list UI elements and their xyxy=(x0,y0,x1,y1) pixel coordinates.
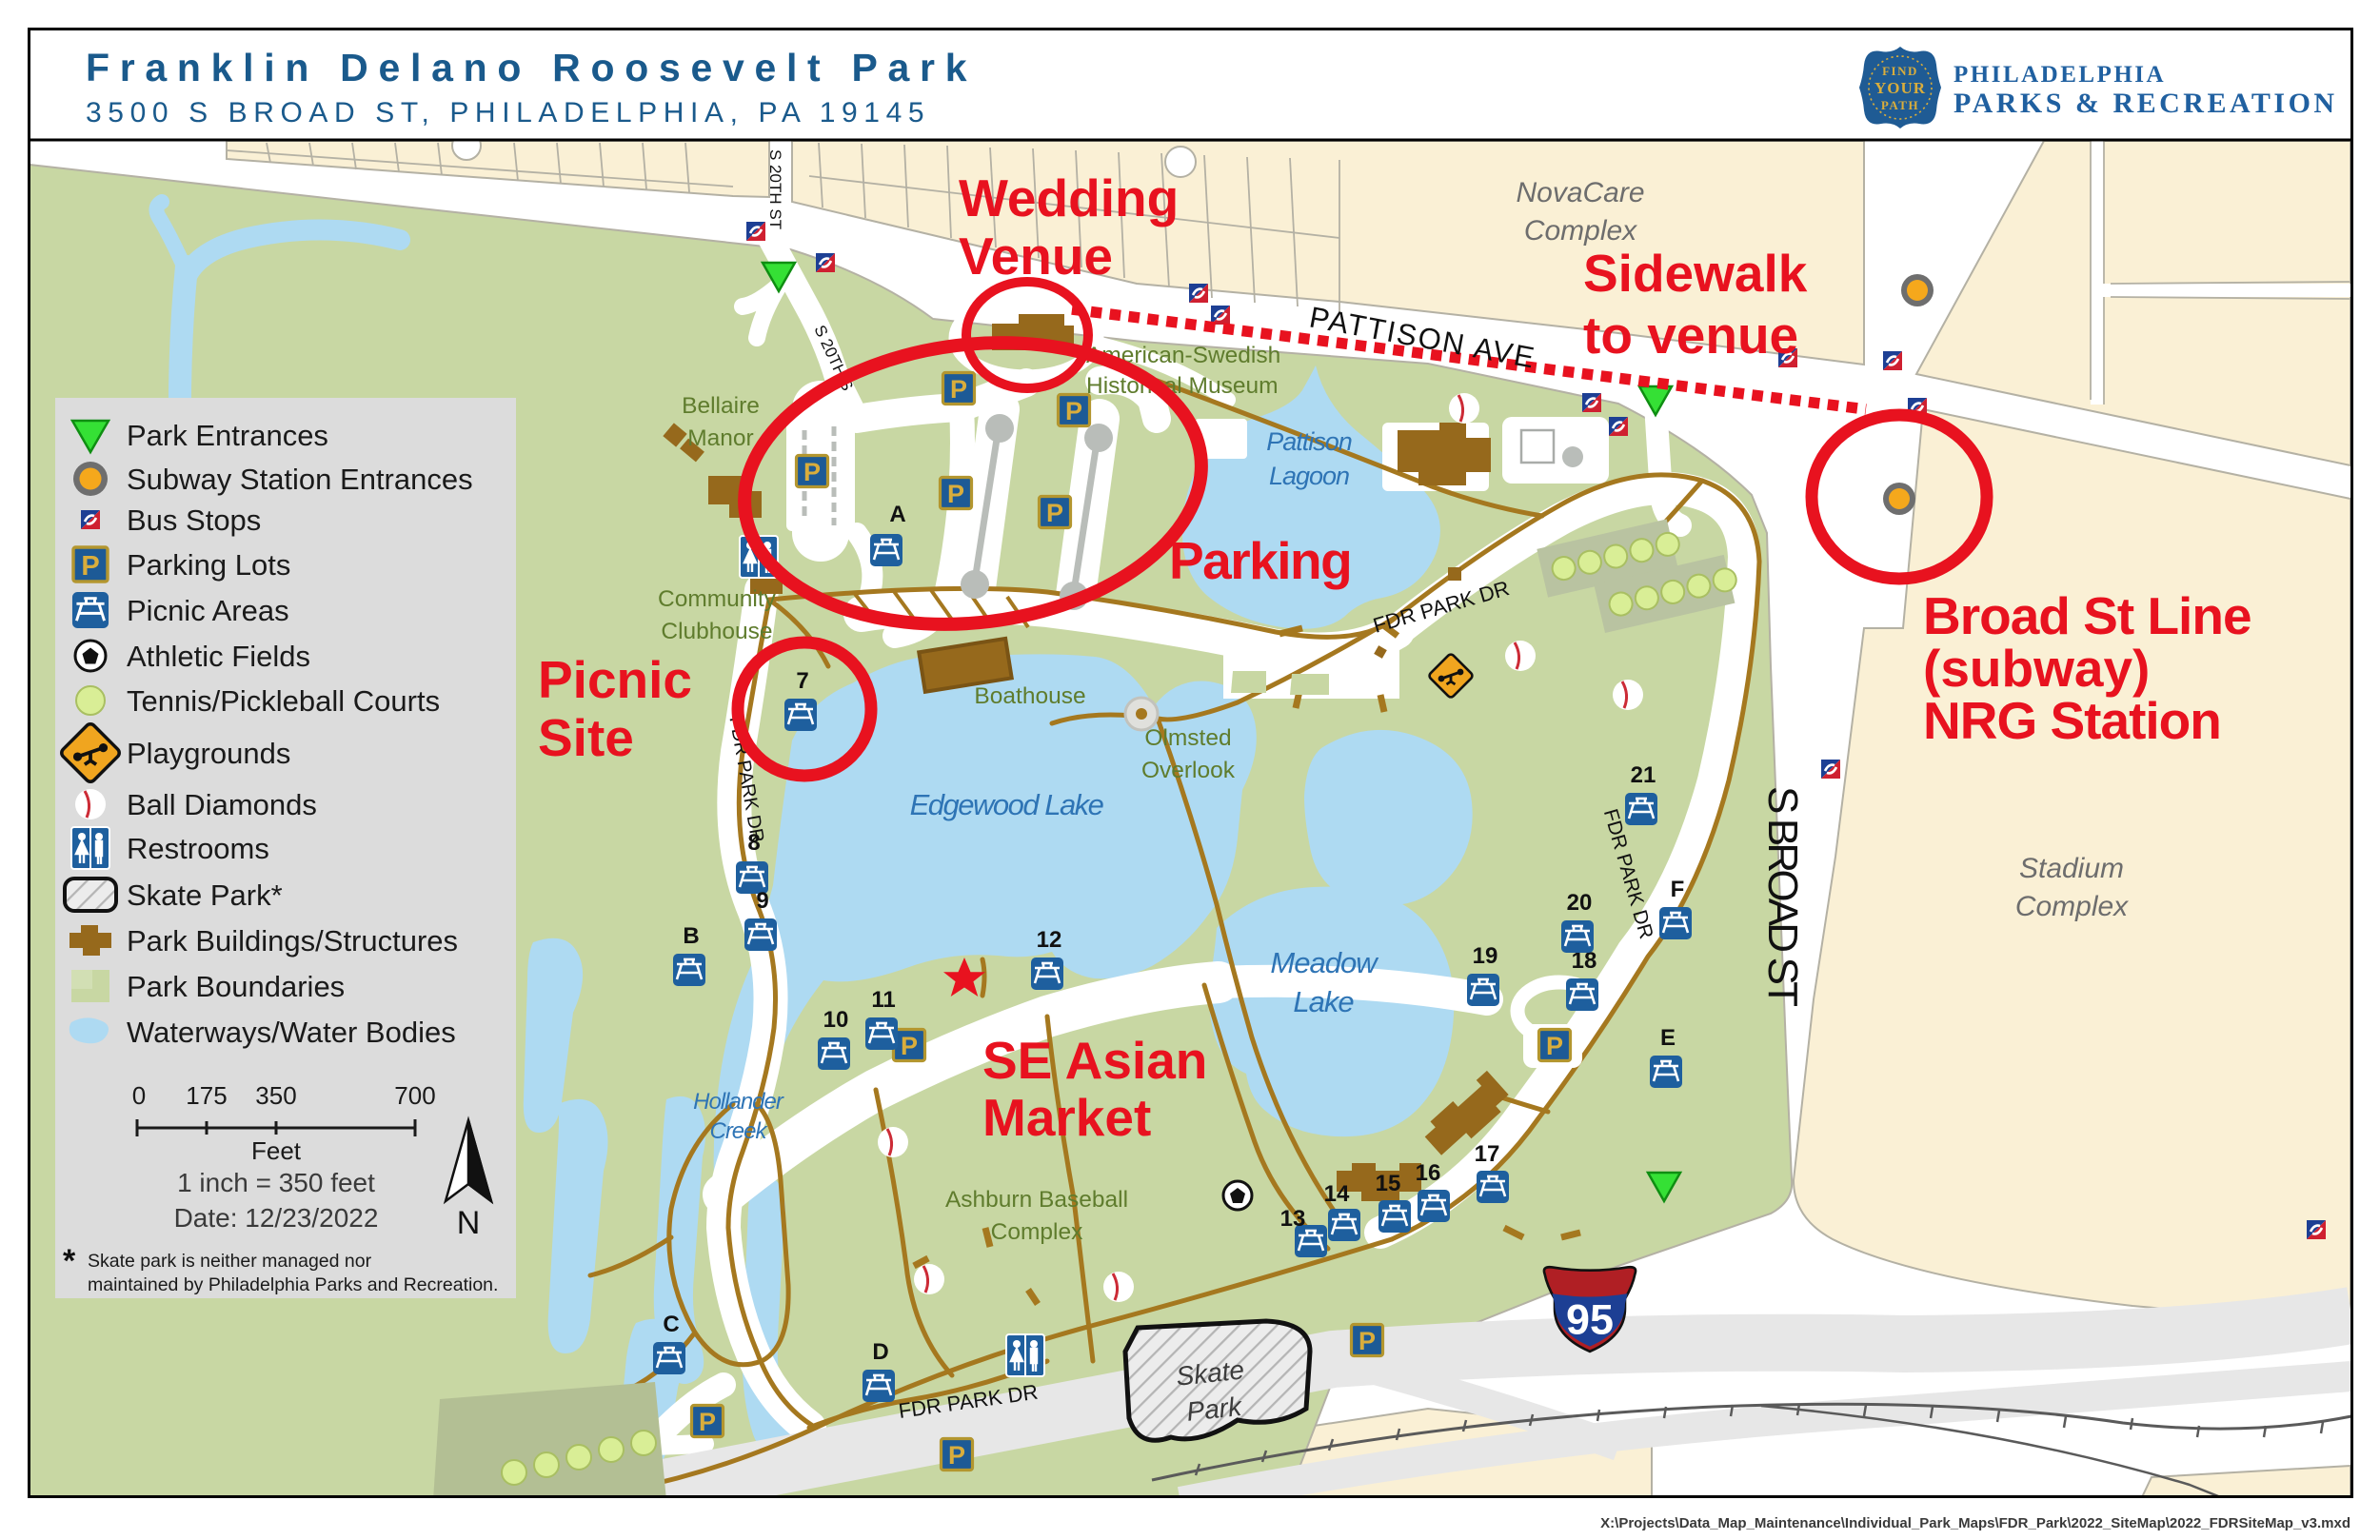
svg-text:YOUR: YOUR xyxy=(1874,79,1926,97)
svg-text:C: C xyxy=(663,1312,679,1337)
svg-text:*: * xyxy=(63,1243,76,1279)
svg-text:B: B xyxy=(683,923,699,949)
svg-text:Site: Site xyxy=(538,708,634,767)
svg-text:Lake: Lake xyxy=(1293,985,1354,1018)
svg-text:Broad St Line: Broad St Line xyxy=(1923,586,2251,645)
svg-text:Waterways/Water Bodies: Waterways/Water Bodies xyxy=(127,1016,456,1049)
svg-text:20: 20 xyxy=(1567,890,1593,916)
svg-text:S BROAD ST: S BROAD ST xyxy=(1759,786,1806,1007)
svg-text:Bus Stops: Bus Stops xyxy=(127,503,261,537)
svg-text:Historical Museum: Historical Museum xyxy=(1086,373,1279,399)
svg-text:175: 175 xyxy=(186,1081,227,1110)
svg-text:21: 21 xyxy=(1631,762,1656,788)
svg-text:Olmsted: Olmsted xyxy=(1144,725,1231,751)
svg-text:Lagoon: Lagoon xyxy=(1269,462,1349,490)
svg-text:17: 17 xyxy=(1475,1141,1500,1167)
svg-text:Market: Market xyxy=(982,1088,1151,1147)
svg-text:95: 95 xyxy=(1566,1294,1614,1343)
svg-text:Pattison: Pattison xyxy=(1266,427,1352,456)
svg-text:9: 9 xyxy=(756,888,768,914)
svg-text:Franklin Delano Roosevelt Park: Franklin Delano Roosevelt Park xyxy=(86,46,977,89)
svg-text:0: 0 xyxy=(132,1081,146,1110)
svg-text:12: 12 xyxy=(1037,927,1062,953)
svg-text:14: 14 xyxy=(1324,1181,1350,1207)
svg-text:Restrooms: Restrooms xyxy=(127,832,269,865)
svg-text:Picnic Areas: Picnic Areas xyxy=(127,594,289,627)
svg-text:Playgrounds: Playgrounds xyxy=(127,737,290,770)
svg-text:15: 15 xyxy=(1376,1171,1401,1196)
svg-text:F: F xyxy=(1671,877,1685,902)
svg-text:Skate park is neither managed: Skate park is neither managed nor xyxy=(88,1251,372,1272)
svg-text:7: 7 xyxy=(796,668,808,694)
svg-text:Ashburn Baseball: Ashburn Baseball xyxy=(945,1187,1128,1213)
svg-text:700: 700 xyxy=(394,1081,435,1110)
svg-text:Tennis/Pickleball Courts: Tennis/Pickleball Courts xyxy=(127,684,440,718)
svg-text:Park Buildings/Structures: Park Buildings/Structures xyxy=(127,924,458,958)
svg-text:1 inch = 350 feet: 1 inch = 350 feet xyxy=(177,1168,375,1197)
svg-text:Complex: Complex xyxy=(991,1219,1083,1245)
svg-text:E: E xyxy=(1660,1025,1676,1051)
svg-text:3500 S BROAD ST, PHILADELPHIA,: 3500 S BROAD ST, PHILADELPHIA, PA 19145 xyxy=(86,97,930,128)
svg-text:A: A xyxy=(889,502,905,527)
svg-text:(subway): (subway) xyxy=(1923,639,2150,698)
svg-text:Park Boundaries: Park Boundaries xyxy=(127,970,345,1003)
svg-text:D: D xyxy=(872,1339,888,1365)
svg-text:10: 10 xyxy=(823,1007,849,1033)
svg-text:X:\Projects\Data_Map_Maintenan: X:\Projects\Data_Map_Maintenance\Individ… xyxy=(1600,1515,2350,1531)
svg-text:NRG Station: NRG Station xyxy=(1923,691,2221,750)
svg-text:Wedding: Wedding xyxy=(959,168,1179,227)
svg-text:S 20TH ST: S 20TH ST xyxy=(766,149,784,229)
svg-text:maintained by Philadelphia Par: maintained by Philadelphia Parks and Rec… xyxy=(88,1274,498,1295)
svg-text:Date: 12/23/2022: Date: 12/23/2022 xyxy=(174,1203,379,1233)
svg-text:Hollander: Hollander xyxy=(693,1089,784,1115)
svg-text:16: 16 xyxy=(1416,1160,1441,1186)
svg-text:Park Entrances: Park Entrances xyxy=(127,419,328,452)
svg-text:Stadium: Stadium xyxy=(2019,853,2124,884)
svg-text:19: 19 xyxy=(1473,943,1498,969)
svg-text:13: 13 xyxy=(1280,1206,1306,1232)
svg-text:FIND: FIND xyxy=(1882,64,1918,78)
svg-text:Venue: Venue xyxy=(959,227,1113,286)
svg-text:Creek: Creek xyxy=(709,1118,768,1144)
svg-text:Clubhouse: Clubhouse xyxy=(661,619,772,644)
svg-text:N: N xyxy=(457,1205,481,1241)
svg-text:SE Asian: SE Asian xyxy=(982,1031,1207,1090)
svg-text:Community: Community xyxy=(658,586,777,612)
svg-text:PARKS & RECREATION: PARKS & RECREATION xyxy=(1954,88,2338,119)
svg-text:Park: Park xyxy=(1185,1392,1244,1427)
svg-text:11: 11 xyxy=(871,987,895,1013)
svg-text:Bellaire: Bellaire xyxy=(682,393,760,419)
svg-text:Complex: Complex xyxy=(2015,891,2129,922)
svg-text:NovaCare: NovaCare xyxy=(1516,177,1644,208)
svg-text:P: P xyxy=(81,551,99,582)
svg-text:Overlook: Overlook xyxy=(1141,758,1236,783)
svg-text:350: 350 xyxy=(255,1081,296,1110)
svg-text:Sidewalk: Sidewalk xyxy=(1583,244,1808,303)
svg-text:PATH: PATH xyxy=(1881,98,1919,112)
svg-text:Subway Station Entrances: Subway Station Entrances xyxy=(127,463,473,496)
svg-text:Meadow: Meadow xyxy=(1270,946,1379,979)
svg-text:Parking Lots: Parking Lots xyxy=(127,548,290,582)
svg-text:Athletic Fields: Athletic Fields xyxy=(127,640,310,673)
svg-text:Feet: Feet xyxy=(251,1136,302,1165)
svg-text:Skate Park*: Skate Park* xyxy=(127,879,283,912)
svg-text:Parking: Parking xyxy=(1169,531,1351,590)
svg-text:to venue: to venue xyxy=(1583,306,1798,365)
svg-text:PHILADELPHIA: PHILADELPHIA xyxy=(1954,62,2166,88)
svg-text:Boathouse: Boathouse xyxy=(974,683,1085,709)
svg-text:Picnic: Picnic xyxy=(538,650,692,709)
svg-text:Edgewood Lake: Edgewood Lake xyxy=(910,788,1104,821)
svg-text:Ball Diamonds: Ball Diamonds xyxy=(127,788,317,821)
svg-text:Complex: Complex xyxy=(1524,215,1637,247)
svg-text:Manor: Manor xyxy=(687,425,753,451)
